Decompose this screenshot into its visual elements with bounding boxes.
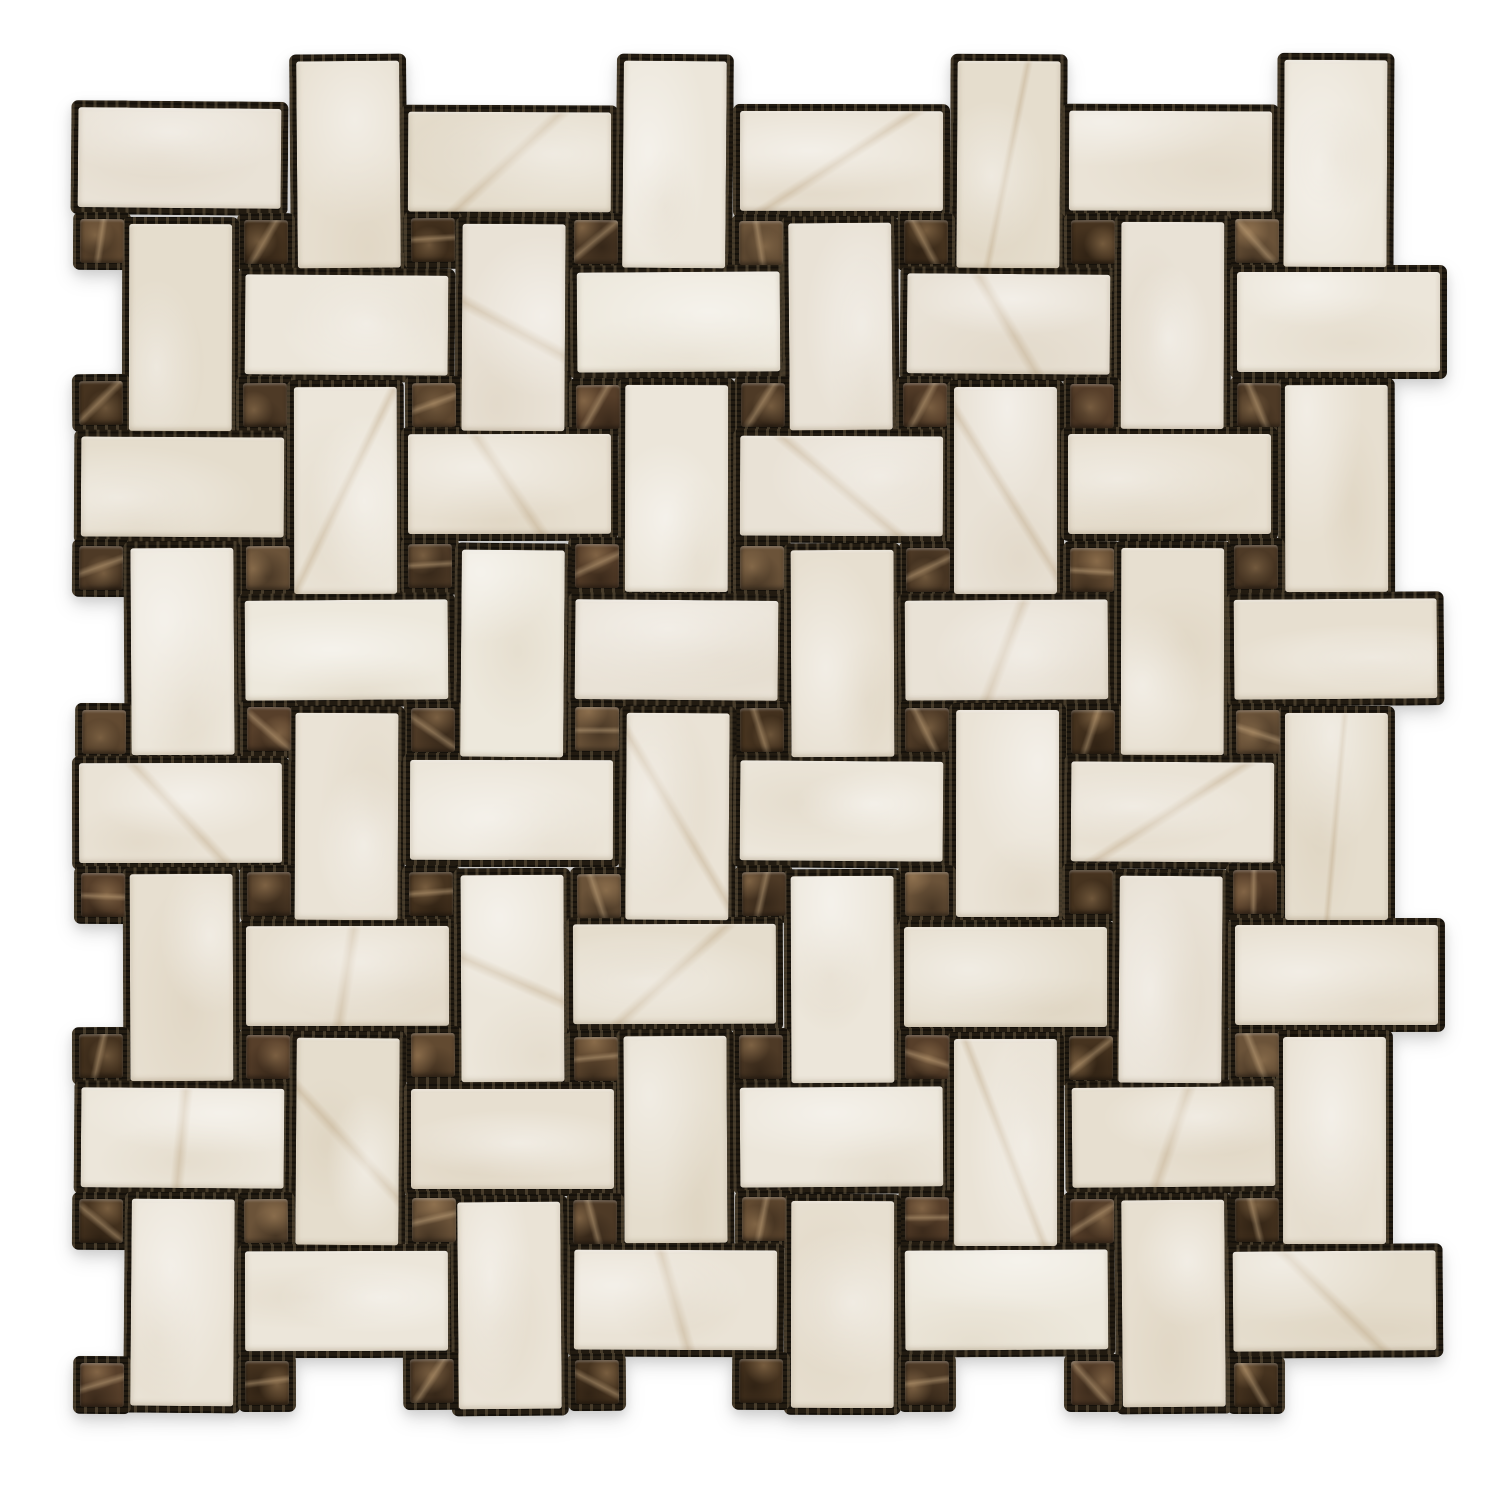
brown-marble-dot-tile	[1069, 870, 1113, 914]
cream-marble-tile-horizontal	[408, 111, 611, 212]
brown-marble-dot-tile	[1237, 382, 1281, 426]
brown-marble-dot-tile	[411, 708, 455, 752]
cream-marble-tile-vertical	[295, 713, 399, 920]
cream-marble-tile-vertical	[130, 1199, 235, 1407]
cream-marble-tile-horizontal	[904, 927, 1107, 1027]
brown-marble-dot-tile	[1071, 219, 1115, 263]
brown-marble-dot-tile	[739, 1035, 783, 1079]
brown-marble-dot-tile	[247, 872, 291, 916]
cream-marble-tile-horizontal	[80, 1087, 284, 1189]
brown-marble-dot-tile	[905, 1361, 949, 1405]
brown-marble-dot-tile	[740, 383, 784, 427]
brown-marble-dot-tile	[80, 1363, 124, 1407]
cream-marble-tile-vertical	[1121, 548, 1224, 755]
cream-marble-tile-horizontal	[740, 1086, 944, 1187]
cream-marble-tile-vertical	[624, 1036, 728, 1244]
cream-marble-tile-horizontal	[411, 1089, 614, 1189]
brown-marble-dot-tile	[1069, 548, 1113, 592]
brown-marble-dot-tile	[575, 544, 619, 588]
cream-marble-tile-vertical	[1119, 876, 1223, 1084]
brown-marble-dot-tile	[903, 383, 947, 427]
brown-marble-dot-tile	[243, 382, 287, 426]
cream-marble-tile-vertical	[458, 1202, 563, 1410]
cream-marble-tile-horizontal	[1071, 761, 1275, 862]
brown-marble-dot-tile	[739, 1359, 783, 1403]
cream-marble-tile-horizontal	[905, 600, 1109, 701]
cream-marble-tile-vertical	[130, 873, 234, 1080]
cream-marble-tile-vertical	[295, 1038, 399, 1246]
cream-marble-tile-vertical	[954, 1039, 1057, 1246]
brown-marble-dot-tile	[408, 544, 452, 588]
cream-marble-tile-vertical	[460, 875, 564, 1082]
brown-marble-dot-tile	[80, 219, 124, 263]
brown-marble-dot-tile	[576, 385, 620, 429]
brown-marble-dot-tile	[245, 1361, 289, 1405]
cream-marble-tile-vertical	[956, 61, 1060, 269]
cream-marble-tile-horizontal	[244, 599, 448, 701]
cream-marble-tile-horizontal	[905, 1250, 1109, 1351]
cream-marble-tile-horizontal	[78, 107, 282, 209]
brown-marble-dot-tile	[81, 710, 125, 754]
brown-marble-dot-tile	[1235, 1033, 1279, 1077]
brown-marble-dot-tile	[905, 708, 949, 752]
mosaic-sheet	[0, 0, 1500, 1500]
brown-marble-dot-tile	[1233, 870, 1277, 914]
brown-marble-dot-tile	[1235, 1198, 1279, 1242]
cream-marble-tile-horizontal	[1068, 434, 1271, 534]
cream-marble-tile-horizontal	[574, 1249, 777, 1350]
brown-marble-dot-tile	[740, 546, 784, 590]
brown-marble-dot-tile	[411, 1033, 455, 1077]
cream-marble-tile-vertical	[790, 1201, 893, 1408]
brown-marble-dot-tile	[79, 546, 123, 590]
brown-marble-dot-tile	[742, 1197, 786, 1241]
brown-marble-dot-tile	[244, 1199, 288, 1243]
brown-marble-dot-tile	[573, 1200, 617, 1244]
cream-marble-tile-vertical	[955, 710, 1058, 917]
brown-marble-dot-tile	[575, 1360, 619, 1404]
cream-marble-tile-vertical	[1283, 1037, 1386, 1244]
brown-marble-dot-tile	[81, 873, 125, 917]
brown-marble-dot-tile	[79, 1033, 123, 1077]
cream-marble-tile-horizontal	[80, 436, 284, 537]
cream-marble-tile-horizontal	[246, 926, 449, 1026]
brown-marble-dot-tile	[577, 874, 621, 918]
brown-marble-dot-tile	[905, 1197, 949, 1241]
cream-marble-tile-vertical	[461, 223, 565, 431]
cream-marble-tile-horizontal	[410, 760, 613, 860]
cream-marble-tile-vertical	[791, 876, 895, 1083]
cream-marble-tile-horizontal	[1235, 925, 1438, 1025]
brown-marble-dot-tile	[903, 220, 947, 264]
brown-marble-dot-tile	[79, 1199, 123, 1243]
cream-marble-tile-vertical	[626, 713, 730, 921]
cream-marble-tile-horizontal	[1234, 599, 1438, 701]
brown-marble-dot-tile	[1071, 1361, 1115, 1405]
cream-marble-tile-horizontal	[573, 924, 776, 1025]
brown-marble-dot-tile	[409, 872, 453, 916]
brown-marble-dot-tile	[1235, 219, 1279, 263]
brown-marble-dot-tile	[905, 872, 949, 916]
cream-marble-tile-horizontal	[245, 274, 449, 376]
cream-marble-tile-horizontal	[408, 434, 611, 534]
cream-marble-tile-vertical	[460, 550, 565, 758]
cream-marble-tile-horizontal	[576, 271, 780, 372]
cream-marble-tile-horizontal	[1233, 1250, 1437, 1352]
brown-marble-dot-tile	[1234, 1363, 1278, 1407]
cream-marble-tile-horizontal	[79, 762, 282, 862]
cream-marble-tile-vertical	[1284, 60, 1388, 267]
cream-marble-tile-horizontal	[1237, 272, 1440, 372]
cream-marble-tile-vertical	[1120, 222, 1224, 429]
cream-marble-tile-vertical	[296, 61, 401, 269]
brown-marble-dot-tile	[740, 707, 784, 751]
cream-marble-tile-horizontal	[1071, 1086, 1275, 1188]
brown-marble-dot-tile	[1069, 384, 1113, 428]
cream-marble-tile-vertical	[625, 385, 728, 592]
cream-marble-tile-vertical	[129, 224, 232, 431]
brown-marble-dot-tile	[410, 1359, 454, 1403]
cream-marble-tile-horizontal	[740, 760, 944, 862]
cream-marble-tile-vertical	[1285, 713, 1388, 920]
product-photo	[0, 0, 1500, 1500]
brown-marble-dot-tile	[1070, 1199, 1114, 1243]
cream-marble-tile-vertical	[623, 61, 728, 269]
cream-marble-tile-horizontal	[574, 599, 778, 701]
cream-marble-tile-vertical	[1285, 385, 1388, 592]
cream-marble-tile-horizontal	[907, 273, 1111, 375]
cream-marble-tile-horizontal	[1068, 111, 1271, 212]
cream-marble-tile-vertical	[954, 387, 1057, 594]
brown-marble-dot-tile	[1236, 710, 1280, 754]
cream-marble-tile-horizontal	[740, 111, 943, 211]
brown-marble-dot-tile	[574, 220, 618, 264]
brown-marble-dot-tile	[78, 381, 122, 425]
brown-marble-dot-tile	[1071, 710, 1115, 754]
cream-marble-tile-vertical	[293, 387, 396, 594]
brown-marble-dot-tile	[246, 1035, 290, 1079]
brown-marble-dot-tile	[412, 1198, 456, 1242]
brown-marble-dot-tile	[411, 218, 455, 262]
cream-marble-tile-vertical	[791, 550, 895, 757]
brown-marble-dot-tile	[247, 707, 291, 751]
brown-marble-dot-tile	[246, 546, 290, 590]
brown-marble-dot-tile	[905, 1035, 949, 1079]
cream-marble-tile-horizontal	[740, 436, 943, 537]
cream-marble-tile-vertical	[1121, 1199, 1226, 1407]
brown-marble-dot-tile	[739, 221, 783, 265]
brown-marble-dot-tile	[1234, 545, 1278, 589]
cream-marble-tile-horizontal	[245, 1251, 448, 1351]
brown-marble-dot-tile	[906, 548, 950, 592]
brown-marble-dot-tile	[411, 383, 455, 427]
brown-marble-dot-tile	[575, 707, 619, 751]
cream-marble-tile-vertical	[130, 548, 234, 756]
brown-marble-dot-tile	[244, 220, 288, 264]
brown-marble-dot-tile	[742, 872, 786, 916]
brown-marble-dot-tile	[573, 1037, 617, 1081]
cream-marble-tile-vertical	[788, 223, 893, 431]
brown-marble-dot-tile	[1069, 1036, 1113, 1080]
